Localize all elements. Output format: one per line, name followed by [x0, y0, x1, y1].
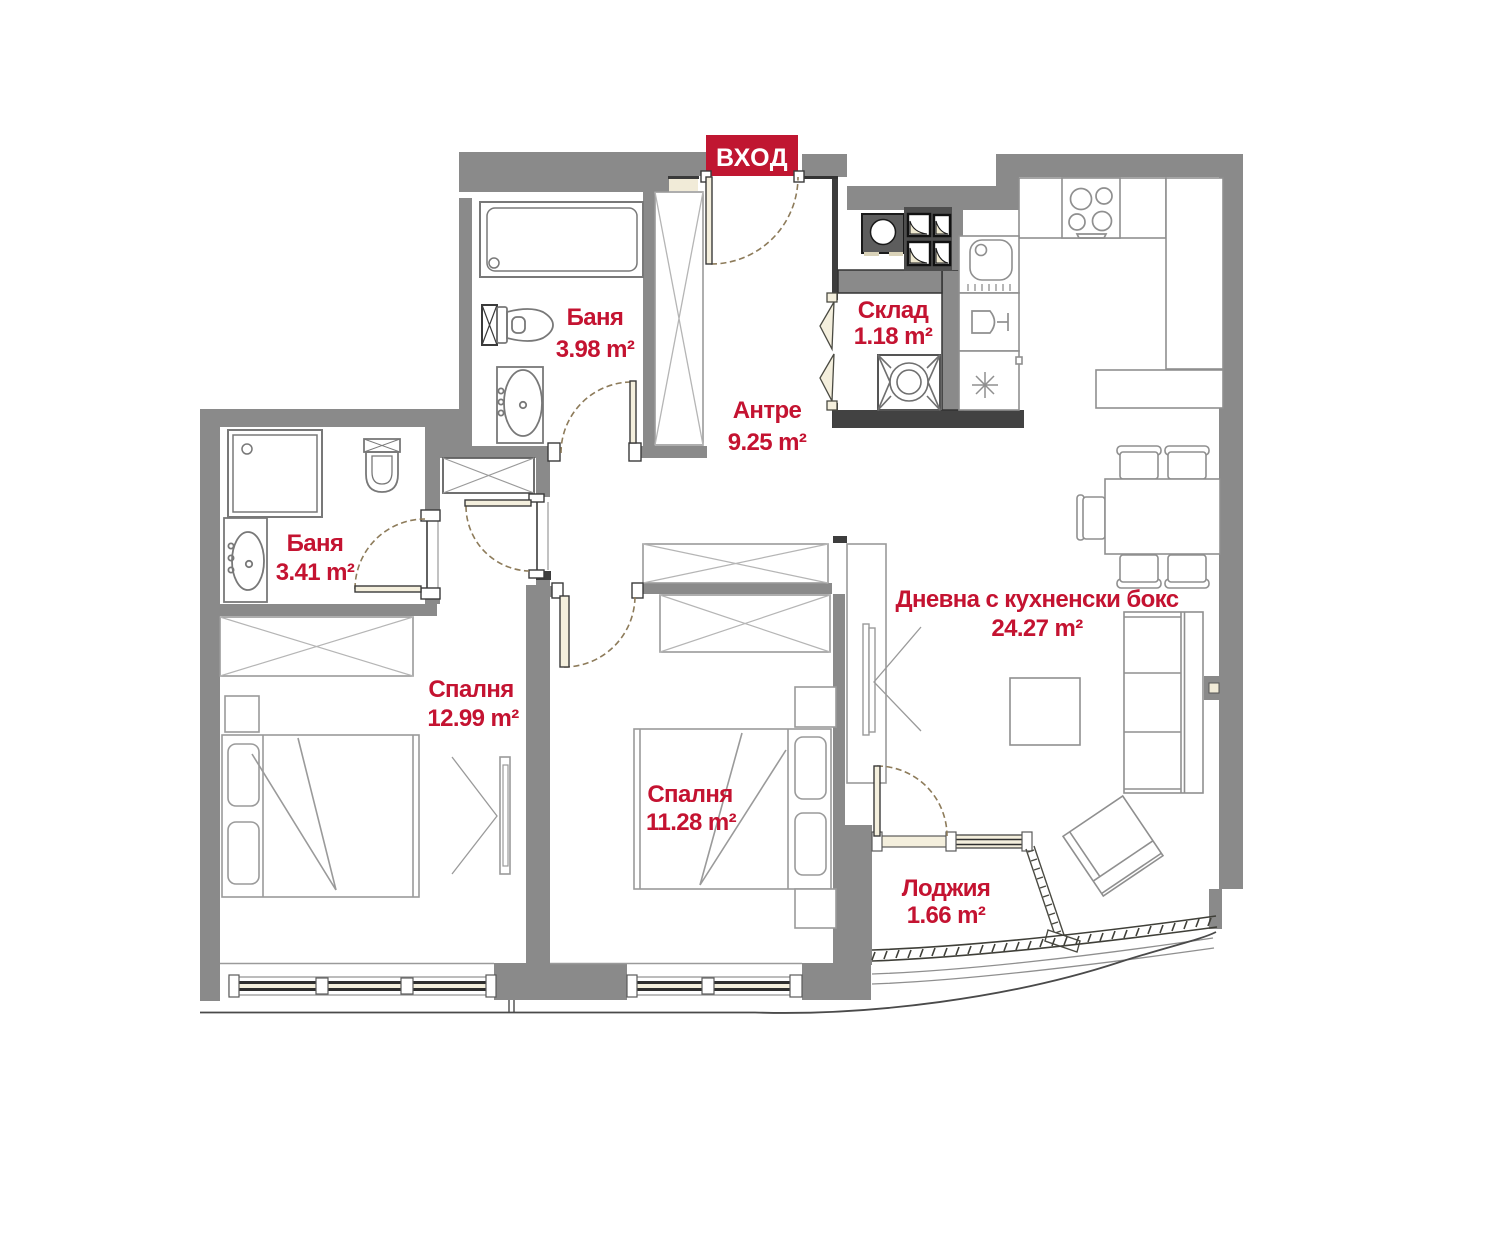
svg-text:Склад: Склад — [858, 297, 929, 324]
svg-text:Дневна с кухненски бокс: Дневна с кухненски бокс — [895, 586, 1178, 613]
svg-text:Спалня: Спалня — [647, 781, 732, 808]
svg-text:24.27 m²: 24.27 m² — [991, 615, 1083, 642]
svg-text:1.66 m²: 1.66 m² — [907, 902, 986, 929]
svg-text:1.18 m²: 1.18 m² — [854, 323, 933, 350]
svg-text:Баня: Баня — [287, 530, 344, 557]
svg-text:Спалня: Спалня — [428, 676, 513, 703]
svg-text:Лоджия: Лоджия — [902, 875, 991, 902]
svg-text:ВХОД: ВХОД — [716, 144, 788, 172]
svg-text:9.25 m²: 9.25 m² — [728, 429, 807, 456]
svg-text:11.28 m²: 11.28 m² — [646, 809, 737, 836]
svg-text:Антре: Антре — [733, 397, 802, 424]
svg-text:Баня: Баня — [567, 304, 624, 331]
svg-text:3.98 m²: 3.98 m² — [556, 336, 635, 363]
svg-text:12.99 m²: 12.99 m² — [427, 705, 519, 732]
svg-text:3.41 m²: 3.41 m² — [276, 559, 355, 586]
